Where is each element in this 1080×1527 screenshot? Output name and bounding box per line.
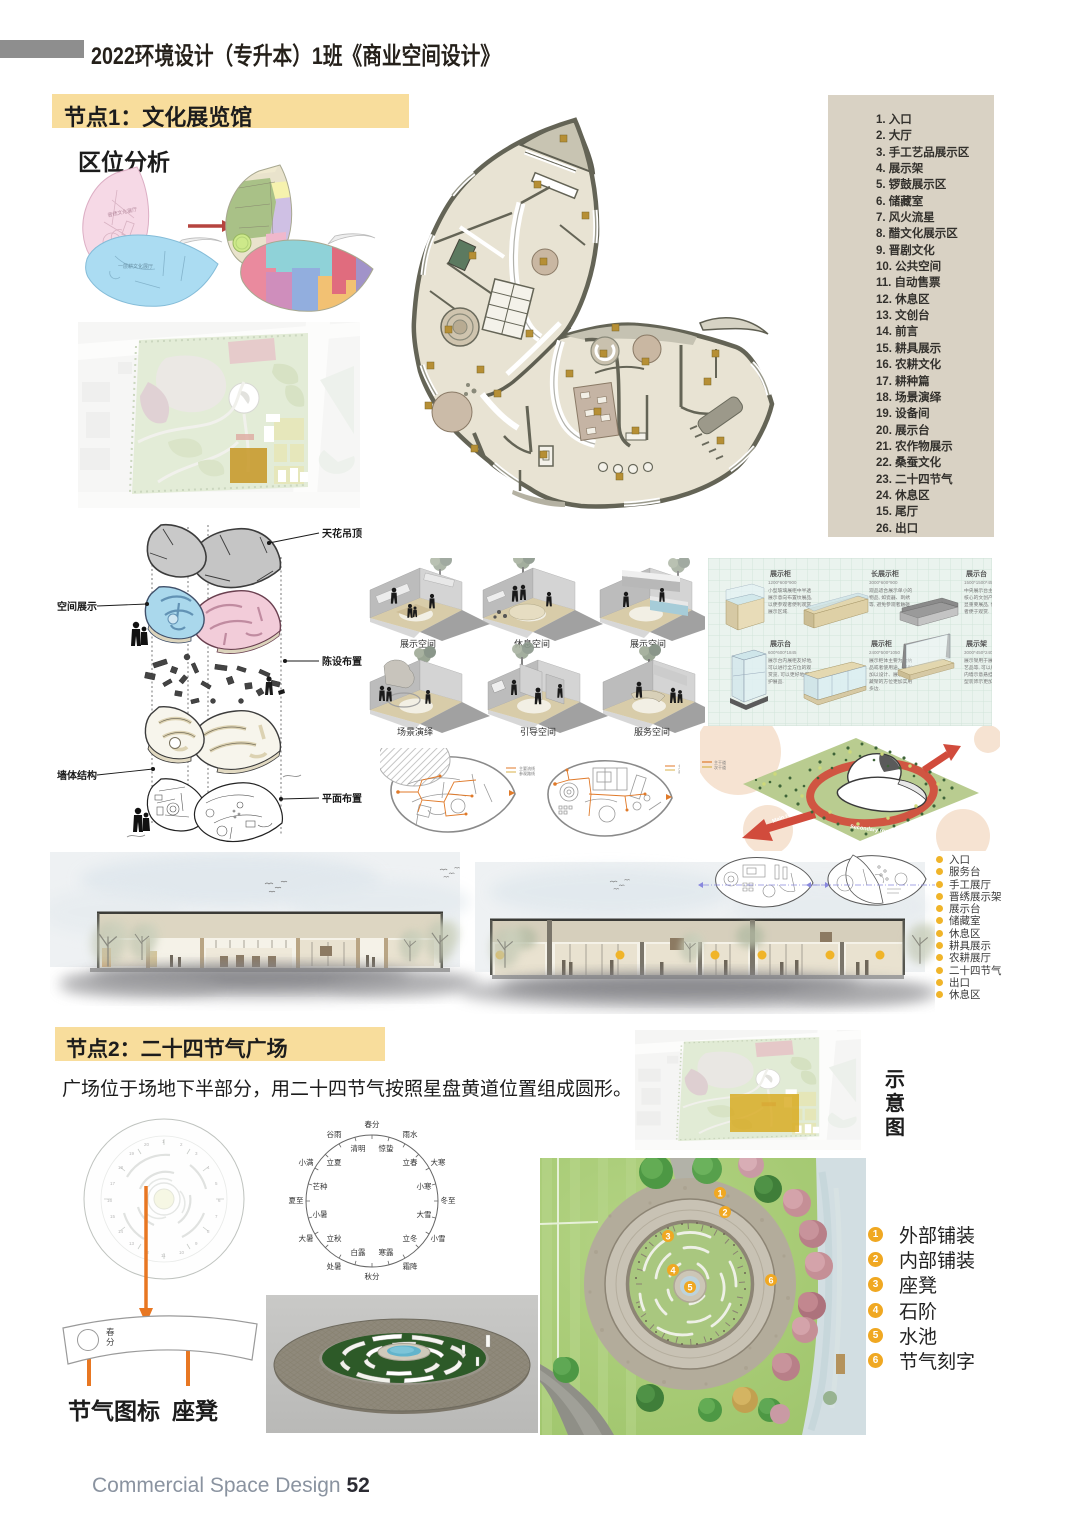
svg-text:展示意向布置纹展品,: 展示意向布置纹展品, <box>768 594 813 601</box>
svg-text:物品, 如瓷器、刺绣: 物品, 如瓷器、刺绣 <box>869 594 910 601</box>
svg-text:2: 2 <box>722 1208 727 1218</box>
svg-text:墙体结构: 墙体结构 <box>57 769 97 782</box>
svg-text:平面布置: 平面布置 <box>322 792 362 805</box>
svg-text:6: 6 <box>768 1276 773 1286</box>
svg-text:展示架: 展示架 <box>965 639 987 648</box>
svg-text:17: 17 <box>110 1181 116 1186</box>
svg-text:陈设布置: 陈设布置 <box>322 655 362 668</box>
svg-text:18: 18 <box>118 1165 124 1170</box>
svg-text:11: 11 <box>161 1253 166 1258</box>
svg-text:16: 16 <box>107 1198 113 1203</box>
svg-text:藏架的方位更加实用: 藏架的方位更加实用 <box>869 678 912 685</box>
svg-text:5: 5 <box>687 1283 692 1293</box>
svg-text:4: 4 <box>670 1266 675 1276</box>
svg-text:清明: 清明 <box>351 1143 366 1153</box>
svg-text:天花吊顶: 天花吊顶 <box>322 527 362 540</box>
svg-text:夏至: 夏至 <box>289 1196 304 1205</box>
svg-text:展示区域.: 展示区域. <box>768 608 789 615</box>
svg-text:次干道: 次干道 <box>714 764 726 770</box>
svg-text:小寒: 小寒 <box>417 1181 432 1191</box>
svg-text:600*600*1845: 600*600*1845 <box>768 650 797 655</box>
svg-text:19: 19 <box>129 1151 135 1156</box>
svg-text:小型玻璃展柜中半透: 小型玻璃展柜中半透 <box>768 587 811 594</box>
svg-text:15: 15 <box>110 1214 116 1219</box>
svg-text:惊蛰: 惊蛰 <box>379 1143 394 1153</box>
svg-text:1500*1500*450: 1500*1500*450 <box>964 580 992 585</box>
svg-text:立春: 立春 <box>403 1157 418 1167</box>
svg-text:场景演绎: 场景演绎 <box>397 726 433 737</box>
svg-text:空间展示: 空间展示 <box>57 600 97 613</box>
svg-text:小暑: 小暑 <box>313 1210 328 1219</box>
svg-text:14: 14 <box>118 1229 124 1234</box>
svg-text:内墙示意悬挂的立体造: 内墙示意悬挂的立体造 <box>964 671 992 678</box>
svg-text:观品适合展示单小的: 观品适合展示单小的 <box>869 587 912 594</box>
svg-text:可以进行全方位的观: 可以进行全方位的观 <box>768 664 811 671</box>
svg-text:雨水: 雨水 <box>403 1129 418 1139</box>
svg-text:20: 20 <box>144 1142 150 1147</box>
svg-text:13: 13 <box>129 1241 135 1246</box>
svg-text:型装饰示更加醒目.: 型装饰示更加醒目. <box>964 678 992 685</box>
svg-text:白露: 白露 <box>351 1247 366 1257</box>
svg-text:核心的文创产品, 突: 核心的文创产品, 突 <box>964 594 992 601</box>
svg-text:3000*450*2400: 3000*450*2400 <box>964 650 992 655</box>
svg-text:霜降: 霜降 <box>403 1261 418 1271</box>
svg-text:3000*600*900: 3000*600*900 <box>869 580 898 585</box>
svg-text:者便于观赏.: 者便于观赏. <box>964 608 989 615</box>
svg-text:以便参观者便利观赏: 以便参观者便利观赏 <box>768 601 811 608</box>
svg-text:艺品等, 可以展示: 艺品等, 可以展示 <box>964 664 992 671</box>
svg-text:展示台: 展示台 <box>965 569 987 578</box>
svg-text:大雪: 大雪 <box>417 1209 432 1219</box>
svg-text:芒种: 芒种 <box>313 1181 328 1191</box>
svg-text:小满: 小满 <box>299 1157 314 1167</box>
svg-text:1: 1 <box>717 1189 722 1199</box>
svg-text:立夏: 立夏 <box>327 1157 342 1167</box>
svg-text:一层耕文化展厅: 一层耕文化展厅 <box>118 263 153 270</box>
svg-text:2400*500*1050: 2400*500*1050 <box>869 650 901 655</box>
svg-text:谷雨: 谷雨 <box>327 1130 342 1139</box>
svg-text:等, 避免参观者触碰: 等, 避免参观者触碰 <box>869 601 910 608</box>
svg-text:立冬: 立冬 <box>403 1233 418 1243</box>
svg-text:分: 分 <box>106 1337 115 1347</box>
svg-text:赏览, 可以更好地保: 赏览, 可以更好地保 <box>768 671 809 678</box>
svg-text:长展示柜: 长展示柜 <box>871 569 899 578</box>
svg-text:参观路线: 参观路线 <box>519 770 535 776</box>
svg-text:展示柜: 展示柜 <box>769 569 791 578</box>
svg-text:春: 春 <box>106 1327 115 1337</box>
svg-text:展示架用于展示手工: 展示架用于展示手工 <box>964 657 992 664</box>
svg-text:春分: 春分 <box>365 1119 380 1129</box>
svg-text:护展品.: 护展品. <box>768 678 784 685</box>
svg-text:大暑: 大暑 <box>299 1233 314 1243</box>
svg-text:显重要展品, 使参观: 显重要展品, 使参观 <box>964 601 992 608</box>
svg-text:流线: 流线 <box>678 768 680 774</box>
svg-text:中央展示台主要展示: 中央展示台主要展示 <box>964 587 992 594</box>
svg-text:引导空间: 引导空间 <box>520 726 556 737</box>
svg-text:1200*600*900: 1200*600*900 <box>768 580 797 585</box>
svg-text:立秋: 立秋 <box>327 1233 342 1243</box>
svg-text:展示台内展柜友好地,: 展示台内展柜友好地, <box>768 657 813 664</box>
svg-text:秋分: 秋分 <box>365 1271 380 1281</box>
svg-text:寒露: 寒露 <box>379 1247 394 1257</box>
svg-text:多边.: 多边. <box>869 685 880 692</box>
svg-text:冬至: 冬至 <box>441 1195 456 1205</box>
svg-text:展示台: 展示台 <box>769 639 791 648</box>
svg-text:处暑: 处暑 <box>327 1261 342 1271</box>
svg-text:10: 10 <box>179 1250 185 1255</box>
svg-text:服务空间: 服务空间 <box>634 726 670 737</box>
svg-text:展示柜: 展示柜 <box>870 639 892 648</box>
svg-text:3: 3 <box>665 1232 670 1242</box>
svg-text:小雪: 小雪 <box>431 1234 446 1243</box>
svg-text:大寒: 大寒 <box>431 1157 446 1167</box>
